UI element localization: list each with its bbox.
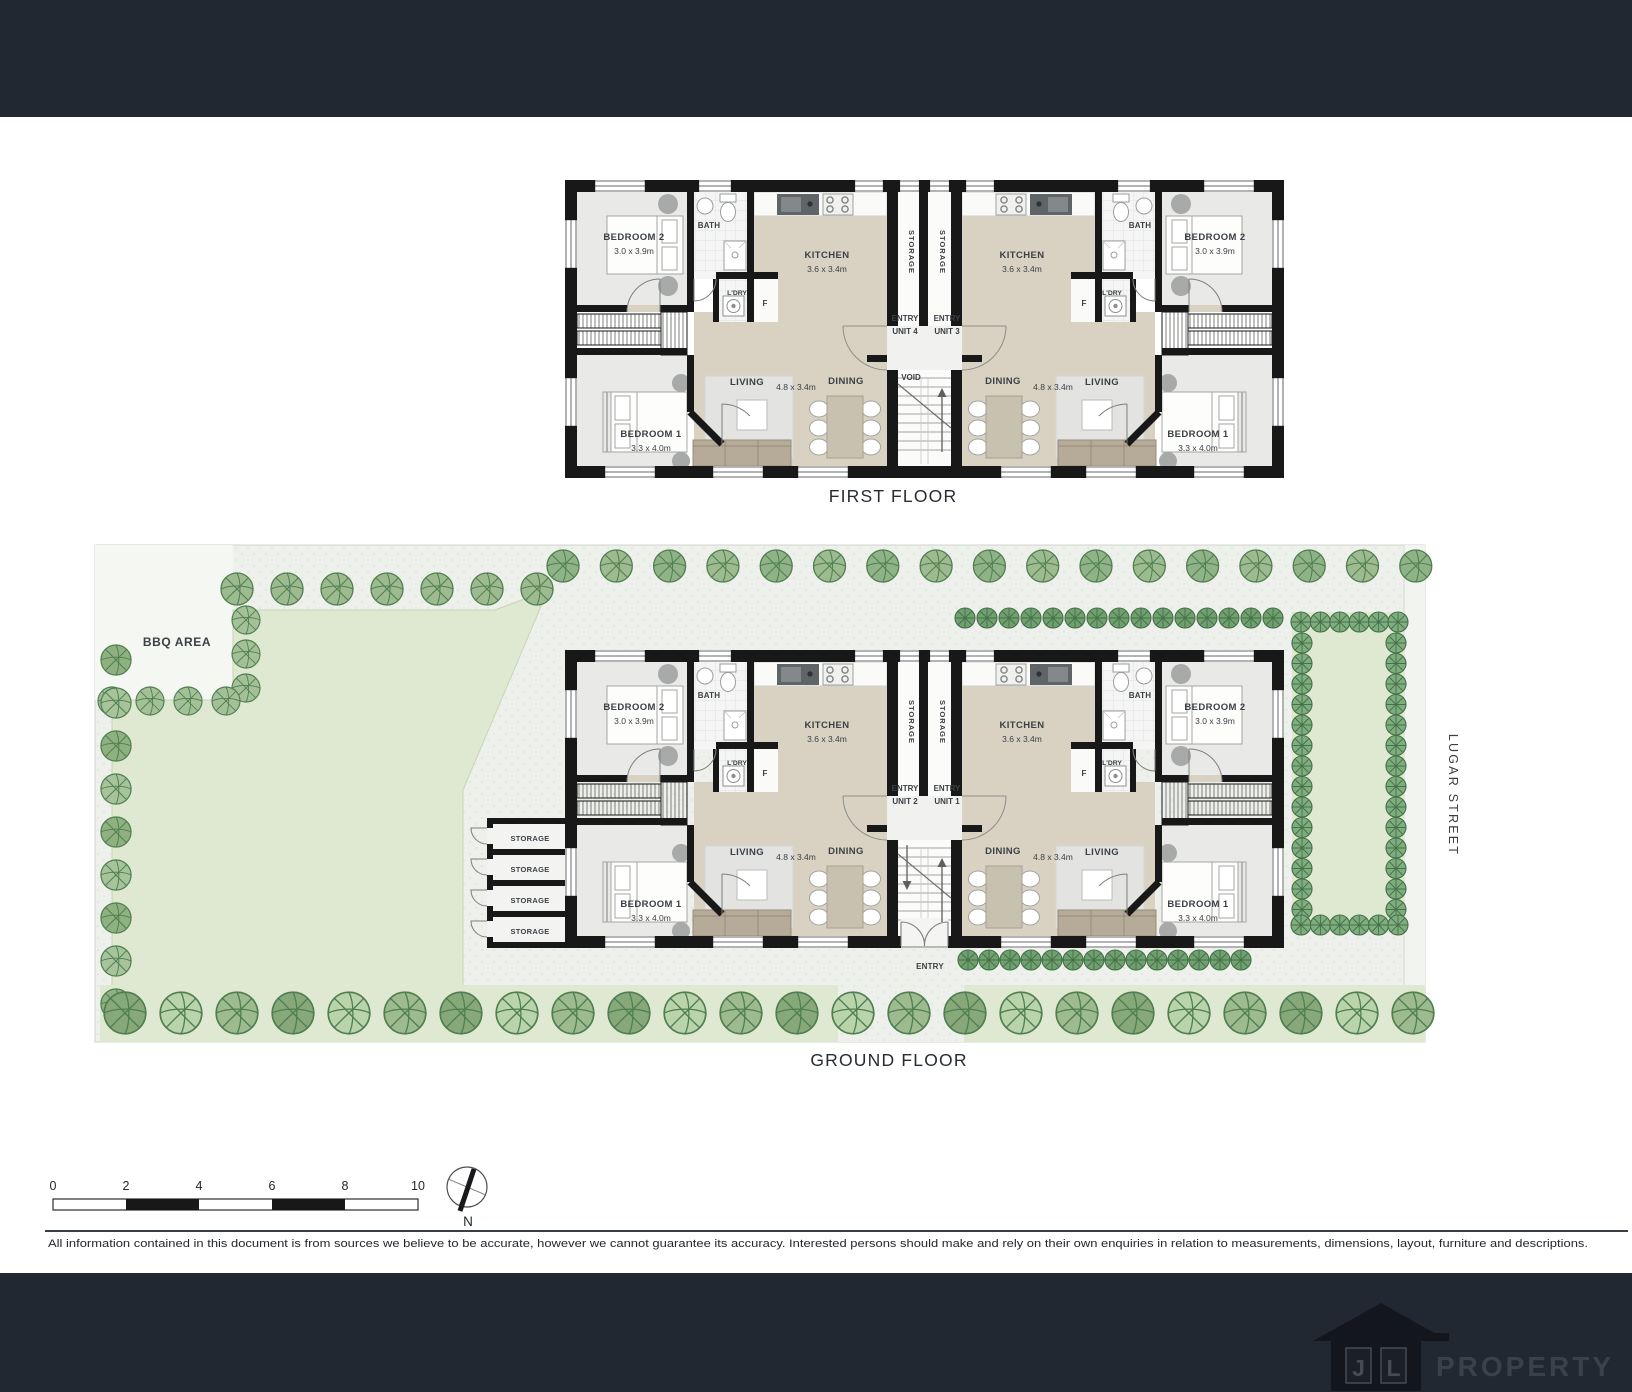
entry-label: ENTRY	[916, 962, 944, 971]
bedroom1-dim: 3.3 x 4.0m	[631, 443, 671, 453]
hedge-icon	[977, 608, 997, 628]
living-label: LIVING	[730, 377, 764, 388]
hedge-icon	[1292, 715, 1312, 735]
tree-icon	[600, 550, 632, 582]
tree-icon	[160, 992, 202, 1034]
kitchen-label: KITCHEN	[999, 250, 1044, 261]
hedge-icon	[1021, 608, 1041, 628]
storage-shaft-label: STORAGE	[938, 230, 947, 274]
tree-icon	[1056, 992, 1098, 1034]
bedroom2-label: BEDROOM 2	[1184, 232, 1245, 243]
tree-icon	[1240, 550, 1272, 582]
tree-icon	[1392, 992, 1434, 1034]
hedge-icon	[1241, 608, 1261, 628]
bedroom2-label: BEDROOM 2	[603, 702, 664, 713]
tree-icon	[888, 992, 930, 1034]
hedge-icon	[1109, 608, 1129, 628]
tree-icon	[136, 687, 164, 715]
tree-icon	[832, 992, 874, 1034]
tree-icon	[101, 946, 131, 976]
bedroom2-label: BEDROOM 2	[1184, 702, 1245, 713]
tree-icon	[104, 992, 146, 1034]
living-dining-dim: 4.8 x 3.4m	[776, 382, 816, 392]
hedge-icon	[1369, 612, 1389, 632]
fridge-label: F	[762, 299, 767, 308]
bedroom1-label: BEDROOM 1	[620, 899, 681, 910]
hedge-icon	[1386, 879, 1406, 899]
tree-icon	[272, 992, 314, 1034]
first-floor-title: FIRST FLOOR	[829, 486, 958, 506]
house-body-icon	[1331, 1341, 1421, 1391]
tree-icon	[1224, 992, 1266, 1034]
hedge-icon	[1231, 950, 1251, 970]
hedge-icon	[1168, 950, 1188, 970]
bedroom1-dim: 3.3 x 4.0m	[631, 913, 671, 923]
storage-label: STORAGE	[510, 865, 549, 874]
tree-icon	[973, 550, 1005, 582]
tree-icon	[101, 817, 131, 847]
laundry-label: L'DRY	[1102, 760, 1122, 767]
tree-icon	[216, 992, 258, 1034]
dining-label: DINING	[828, 376, 864, 387]
hedge-icon	[1310, 915, 1330, 935]
street-name-label: LUGAR STREET	[1446, 734, 1460, 856]
tree-icon	[384, 992, 426, 1034]
hedge-icon	[1292, 777, 1312, 797]
hedge-icon	[1386, 715, 1406, 735]
tree-icon	[1280, 992, 1322, 1034]
hedge-icon	[1043, 608, 1063, 628]
north-label: N	[463, 1214, 473, 1229]
hedge-icon	[1292, 879, 1312, 899]
entry-unit-label: ENTRY	[892, 784, 919, 793]
tree-icon	[101, 645, 131, 675]
hedge-icon	[1063, 950, 1083, 970]
hedge-icon	[958, 950, 978, 970]
tree-icon	[1133, 550, 1165, 582]
tree-icon	[1112, 992, 1154, 1034]
hedge-icon	[1310, 612, 1330, 632]
hedge-icon	[1369, 915, 1389, 935]
entry-unit-number: UNIT 1	[934, 797, 960, 806]
entry-unit-label: ENTRY	[934, 314, 961, 323]
tree-icon	[760, 550, 792, 582]
tree-icon	[1187, 550, 1219, 582]
living-dining-dim: 4.8 x 3.4m	[1033, 382, 1073, 392]
kitchen-label: KITCHEN	[999, 720, 1044, 731]
dining-label: DINING	[828, 846, 864, 857]
tree-icon	[101, 860, 131, 890]
hedge-icon	[1292, 818, 1312, 838]
hedge-icon	[999, 608, 1019, 628]
tree-icon	[920, 550, 952, 582]
first-floor-plan: FIRST FLOOR	[565, 180, 1284, 506]
hedge-icon	[1386, 777, 1406, 797]
living-dining-dim: 4.8 x 3.4m	[776, 852, 816, 862]
hedge-icon	[1000, 950, 1020, 970]
scale-tick: 8	[342, 1179, 349, 1193]
bath-label: BATH	[698, 691, 720, 700]
hedge-icon	[1087, 608, 1107, 628]
tree-icon	[664, 992, 706, 1034]
hedge-icon	[1349, 915, 1369, 935]
tree-icon	[1336, 992, 1378, 1034]
living-label: LIVING	[1085, 377, 1119, 388]
hedge-icon	[1210, 950, 1230, 970]
laundry-label: L'DRY	[727, 760, 747, 767]
hedge-icon	[1219, 608, 1239, 628]
tree-icon	[1347, 550, 1379, 582]
bedroom1-label: BEDROOM 1	[1167, 899, 1228, 910]
tree-icon	[421, 573, 453, 605]
ground-floor-title: GROUND FLOOR	[810, 1050, 967, 1070]
hedge-icon	[1105, 950, 1125, 970]
hedge-icon	[1386, 838, 1406, 858]
hedge-icon	[1126, 950, 1146, 970]
hedge-icon	[1386, 756, 1406, 776]
bedroom1-label: BEDROOM 1	[620, 429, 681, 440]
hedge-icon	[1386, 797, 1406, 817]
divider-line	[45, 1230, 1628, 1232]
dining-label: DINING	[985, 846, 1021, 857]
storage-shaft-label: STORAGE	[938, 700, 947, 744]
hedge-icon	[1042, 950, 1062, 970]
hedge-icon	[979, 950, 999, 970]
header-bar	[0, 0, 1632, 117]
tree-icon	[496, 992, 538, 1034]
living-label: LIVING	[730, 847, 764, 858]
bedroom1-label: BEDROOM 1	[1167, 429, 1228, 440]
tree-icon	[271, 573, 303, 605]
hedge-icon	[1189, 950, 1209, 970]
entry-unit-label: ENTRY	[934, 784, 961, 793]
tree-icon	[1000, 992, 1042, 1034]
tree-icon	[440, 992, 482, 1034]
hedge-icon	[1386, 674, 1406, 694]
floor-plan-document: FIRST FLOOR BBQ AREA LUGAR STREET	[0, 0, 1632, 1392]
bath-label: BATH	[1129, 221, 1151, 230]
hedge-icon	[1292, 797, 1312, 817]
dining-label: DINING	[985, 376, 1021, 387]
storage-label: STORAGE	[510, 896, 549, 905]
hedge-icon	[1330, 915, 1350, 935]
kitchen-dim: 3.6 x 3.4m	[1002, 264, 1042, 274]
hedge-icon	[1153, 608, 1173, 628]
tree-icon	[1293, 550, 1325, 582]
fridge-label: F	[762, 769, 767, 778]
tree-icon	[521, 573, 553, 605]
hedge-icon	[1386, 633, 1406, 653]
hedge-icon	[1291, 915, 1311, 935]
hedge-icon	[1291, 612, 1311, 632]
fridge-label: F	[1081, 769, 1086, 778]
hedge-icon	[1388, 915, 1408, 935]
tree-icon	[101, 774, 131, 804]
entry-unit-number: UNIT 2	[892, 797, 918, 806]
kitchen-dim: 3.6 x 3.4m	[807, 264, 847, 274]
bath-label: BATH	[698, 221, 720, 230]
tree-icon	[814, 550, 846, 582]
scale-tick: 6	[269, 1179, 276, 1193]
hedge-icon	[1292, 736, 1312, 756]
logo-brand-text: PROPERTY	[1436, 1351, 1614, 1382]
hedge-icon	[1330, 612, 1350, 632]
entry-unit-number: UNIT 3	[934, 327, 960, 336]
scale-tick: 4	[196, 1179, 203, 1193]
kitchen-dim: 3.6 x 3.4m	[807, 734, 847, 744]
tree-icon	[371, 573, 403, 605]
hedge-icon	[1388, 612, 1408, 632]
bedroom2-label: BEDROOM 2	[603, 232, 664, 243]
disclaimer-text: All information contained in this docume…	[48, 1238, 1588, 1250]
tree-icon	[221, 573, 253, 605]
hedge-icon	[1349, 612, 1369, 632]
tree-icon	[321, 573, 353, 605]
tree-icon	[232, 606, 260, 634]
bedroom2-dim: 3.0 x 3.9m	[1195, 716, 1235, 726]
tree-icon	[707, 550, 739, 582]
tree-icon	[1400, 550, 1432, 582]
tree-icon	[328, 992, 370, 1034]
bbq-area-label: BBQ AREA	[143, 635, 211, 649]
bedroom2-dim: 3.0 x 3.9m	[1195, 246, 1235, 256]
living-dining-dim: 4.8 x 3.4m	[1033, 852, 1073, 862]
tree-icon	[608, 992, 650, 1034]
tree-icon	[1168, 992, 1210, 1034]
tree-icon	[212, 687, 240, 715]
storage-label: STORAGE	[510, 927, 549, 936]
hedge-icon	[1386, 736, 1406, 756]
hedge-icon	[1292, 838, 1312, 858]
tree-icon	[776, 992, 818, 1034]
bedroom2-dim: 3.0 x 3.9m	[614, 716, 654, 726]
hedge-icon	[1292, 654, 1312, 674]
tree-icon	[471, 573, 503, 605]
hedge-icon	[1386, 818, 1406, 838]
bedroom1-dim: 3.3 x 4.0m	[1178, 913, 1218, 923]
storage-shaft-label: STORAGE	[907, 700, 916, 744]
tree-icon	[1080, 550, 1112, 582]
hedge-icon	[1021, 950, 1041, 970]
living-label: LIVING	[1085, 847, 1119, 858]
kitchen-label: KITCHEN	[804, 250, 849, 261]
tree-icon	[1027, 550, 1059, 582]
kitchen-dim: 3.6 x 3.4m	[1002, 734, 1042, 744]
hedge-icon	[1292, 756, 1312, 776]
hedge-icon	[1263, 608, 1283, 628]
hedge-icon	[955, 608, 975, 628]
hedge-icon	[1065, 608, 1085, 628]
hedge-icon	[1197, 608, 1217, 628]
hedge-icon	[1084, 950, 1104, 970]
hedge-icon	[1386, 654, 1406, 674]
tree-icon	[101, 903, 131, 933]
logo-letter-l: L	[1386, 1355, 1400, 1381]
hedge-icon	[1131, 608, 1151, 628]
tree-icon	[232, 640, 260, 668]
bath-label: BATH	[1129, 691, 1151, 700]
tree-icon	[654, 550, 686, 582]
tree-icon	[720, 992, 762, 1034]
kitchen-label: KITCHEN	[804, 720, 849, 731]
scale-tick: 2	[123, 1179, 130, 1193]
storage-label: STORAGE	[510, 834, 549, 843]
laundry-label: L'DRY	[727, 290, 747, 297]
logo-letter-j: J	[1352, 1355, 1365, 1381]
hedge-icon	[1292, 695, 1312, 715]
hedge-icon	[1386, 859, 1406, 879]
bedroom2-dim: 3.0 x 3.9m	[614, 246, 654, 256]
entry-unit-label: ENTRY	[892, 314, 919, 323]
void-label: VOID	[901, 373, 921, 382]
scale-tick: 10	[411, 1179, 425, 1193]
bedroom1-dim: 3.3 x 4.0m	[1178, 443, 1218, 453]
hedge-icon	[1292, 633, 1312, 653]
bbq-area	[95, 545, 233, 700]
storage-shaft-label: STORAGE	[907, 230, 916, 274]
laundry-label: L'DRY	[1102, 290, 1122, 297]
hedge-icon	[1147, 950, 1167, 970]
hedge-icon	[1175, 608, 1195, 628]
tree-icon	[552, 992, 594, 1034]
scale-tick: 0	[50, 1179, 57, 1193]
entry-unit-number: UNIT 4	[892, 327, 918, 336]
hedge-icon	[1292, 674, 1312, 694]
hedge-icon	[1386, 695, 1406, 715]
hedge-icon	[1292, 859, 1312, 879]
tree-icon	[101, 731, 131, 761]
fridge-label: F	[1081, 299, 1086, 308]
tree-icon	[101, 688, 131, 718]
tree-icon	[174, 687, 202, 715]
tree-icon	[547, 550, 579, 582]
tree-icon	[944, 992, 986, 1034]
tree-icon	[867, 550, 899, 582]
